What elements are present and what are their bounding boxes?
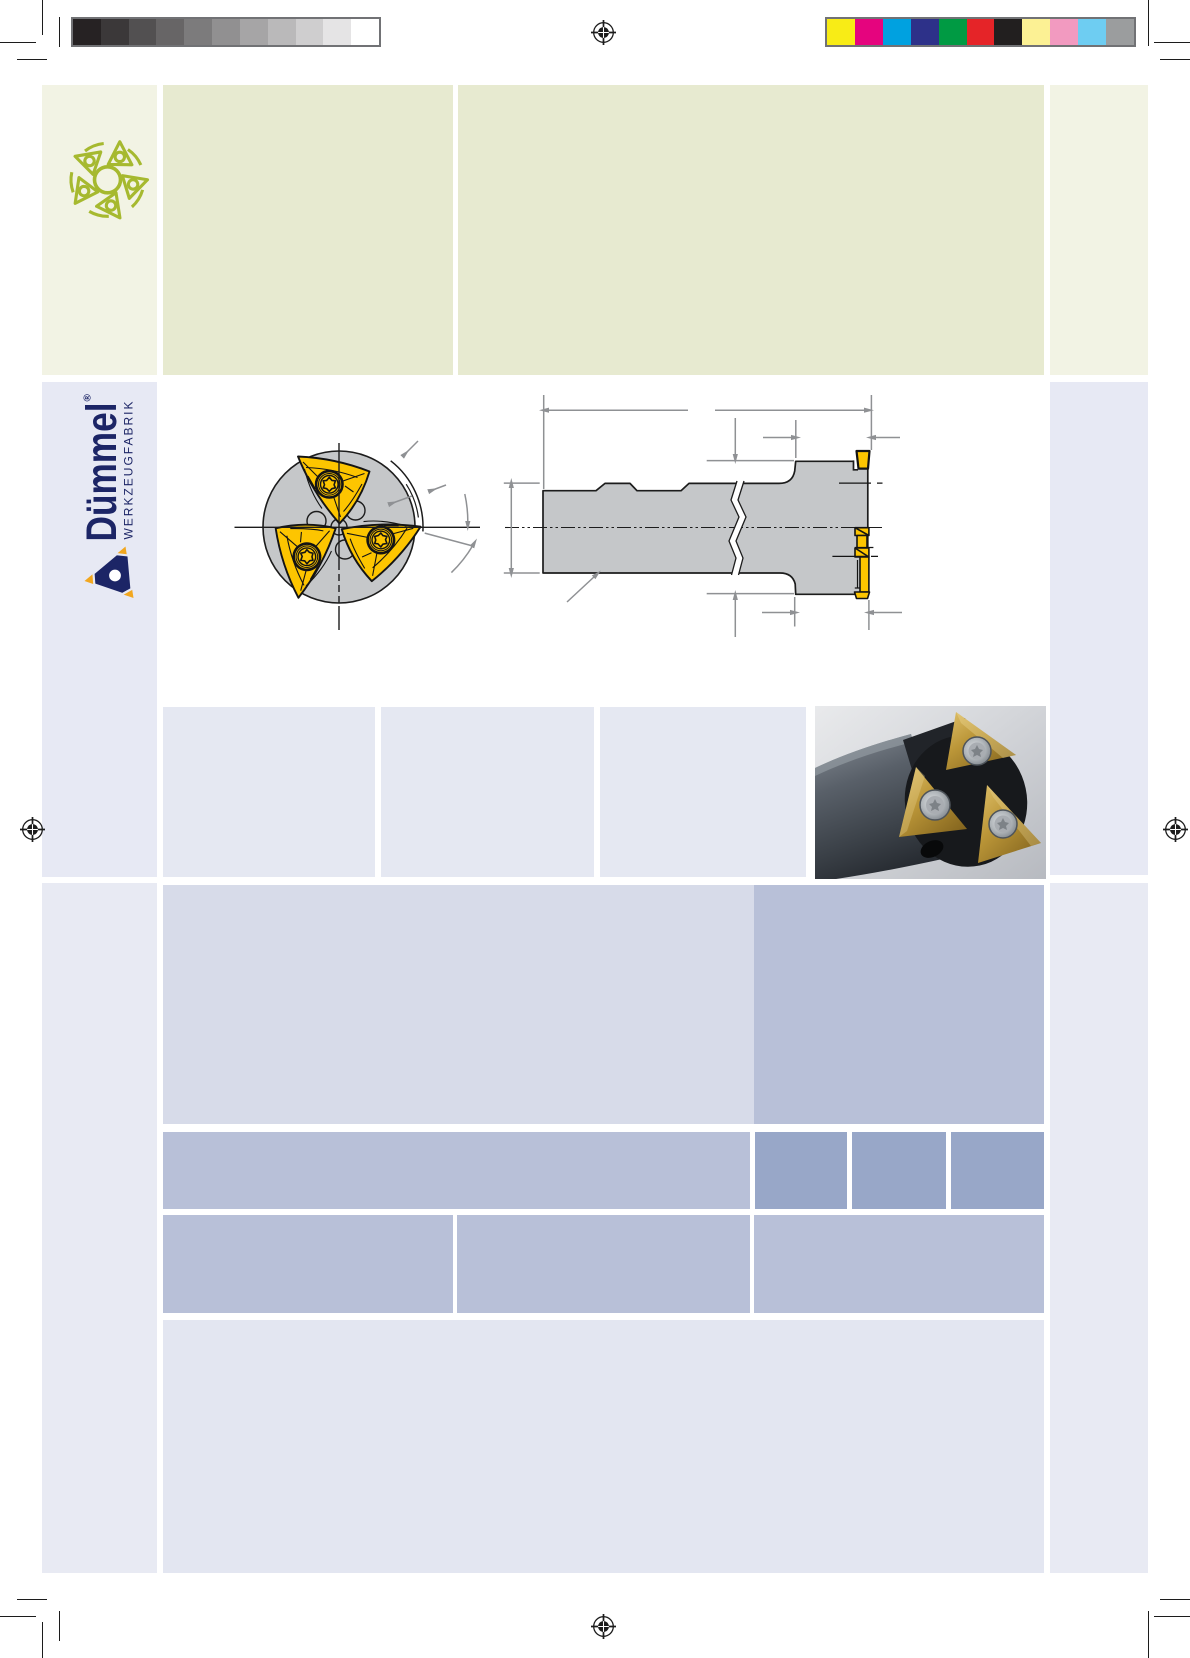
svg-text:®: ® [83,394,94,402]
svg-text:Dümmel: Dümmel [78,403,126,542]
svg-text:WERKZEUGFABRIK: WERKZEUGFABRIK [122,402,136,540]
